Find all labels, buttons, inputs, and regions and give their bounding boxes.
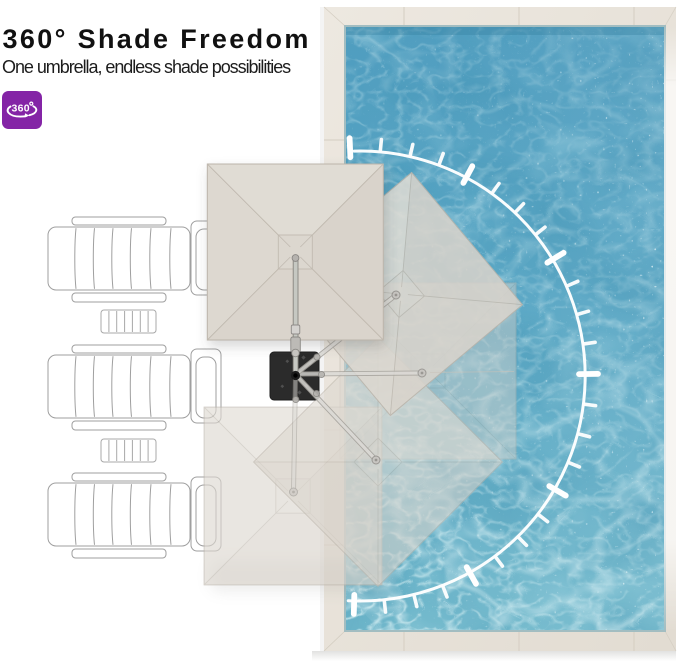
svg-text:360: 360: [12, 103, 30, 115]
svg-text:360° Shade Freedom: 360° Shade Freedom: [3, 24, 311, 54]
svg-text:One umbrella, endless shade po: One umbrella, endless shade possibilitie…: [2, 57, 291, 77]
